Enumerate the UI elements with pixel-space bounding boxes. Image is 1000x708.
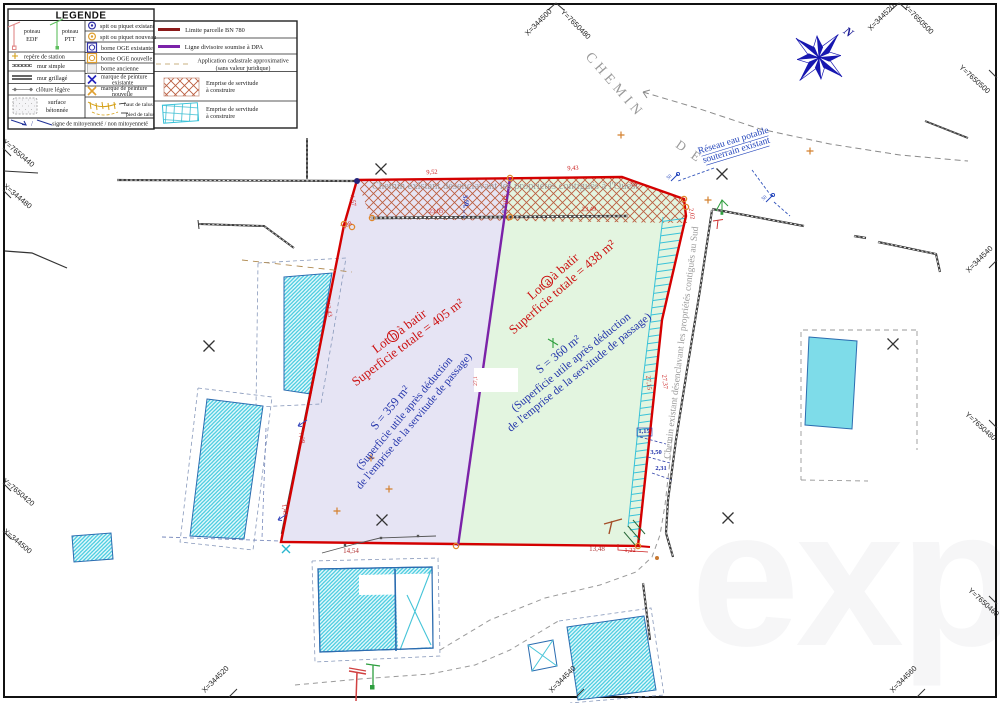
svg-text:mur simple: mur simple (37, 63, 65, 70)
svg-text:Chemin existant désenclavant l: Chemin existant désenclavant les proprié… (372, 181, 638, 192)
svg-text:poteau: poteau (24, 28, 41, 35)
svg-text:EDF: EDF (26, 36, 38, 43)
svg-text:poteau: poteau (62, 28, 79, 35)
svg-text:1,15: 1,15 (638, 428, 650, 435)
svg-text:nouvelle: nouvelle (112, 92, 133, 98)
svg-text:/: / (31, 120, 33, 128)
svg-text:pied de talus: pied de talus (126, 112, 156, 118)
svg-text:bétonnée: bétonnée (46, 107, 69, 114)
svg-text:borne OGE nouvelle: borne OGE nouvelle (101, 56, 152, 63)
svg-text:clôture légère: clôture légère (36, 87, 70, 94)
svg-text:1,22: 1,22 (624, 547, 635, 554)
svg-text:13,48: 13,48 (589, 545, 605, 553)
svg-text:27,1: 27,1 (473, 376, 479, 386)
svg-text:mur grillagé: mur grillagé (37, 75, 68, 82)
svg-text:14,54: 14,54 (343, 547, 359, 555)
svg-text:9,52: 9,52 (426, 169, 438, 176)
svg-text:9,43: 9,43 (567, 165, 579, 172)
svg-text:haut de talus: haut de talus (124, 102, 154, 108)
svg-text:signe de mitoyenneté / non mi: signe de mitoyenneté / non mitoyenneté (52, 122, 148, 128)
svg-text:23,05: 23,05 (429, 208, 444, 215)
svg-text:borne OGE existante: borne OGE existante (101, 45, 153, 52)
svg-text:repère de station: repère de station (24, 54, 65, 61)
svg-text:à construire: à construire (206, 113, 235, 120)
svg-text:2,31: 2,31 (655, 465, 666, 472)
svg-text:PTT: PTT (64, 36, 75, 43)
svg-text:spit ou piquet nouveau: spit ou piquet nouveau (100, 34, 156, 41)
svg-text:3,50: 3,50 (650, 449, 661, 456)
svg-text:Limite parcelle BN 780: Limite parcelle BN 780 (185, 27, 245, 34)
svg-text:Application cadastrale approxi: Application cadastrale approximative (197, 59, 289, 65)
svg-text:spit ou piquet existant: spit ou piquet existant (100, 23, 155, 30)
svg-text:borne ancienne: borne ancienne (101, 66, 139, 73)
svg-text:Emprise de servitude: Emprise de servitude (206, 106, 258, 113)
svg-text:(sans valeur juridique): (sans valeur juridique) (216, 65, 271, 72)
svg-text:Ligne divisoire soumise à DPA: Ligne divisoire soumise à DPA (185, 44, 264, 51)
svg-text:23,49: 23,49 (582, 206, 597, 213)
svg-text:LEGENDE: LEGENDE (56, 11, 107, 22)
svg-text:à construire: à construire (206, 87, 235, 94)
svg-text:surface: surface (48, 99, 66, 106)
svg-text:exp: exp (691, 469, 1000, 687)
svg-text:Emprise de servitude: Emprise de servitude (206, 80, 258, 87)
